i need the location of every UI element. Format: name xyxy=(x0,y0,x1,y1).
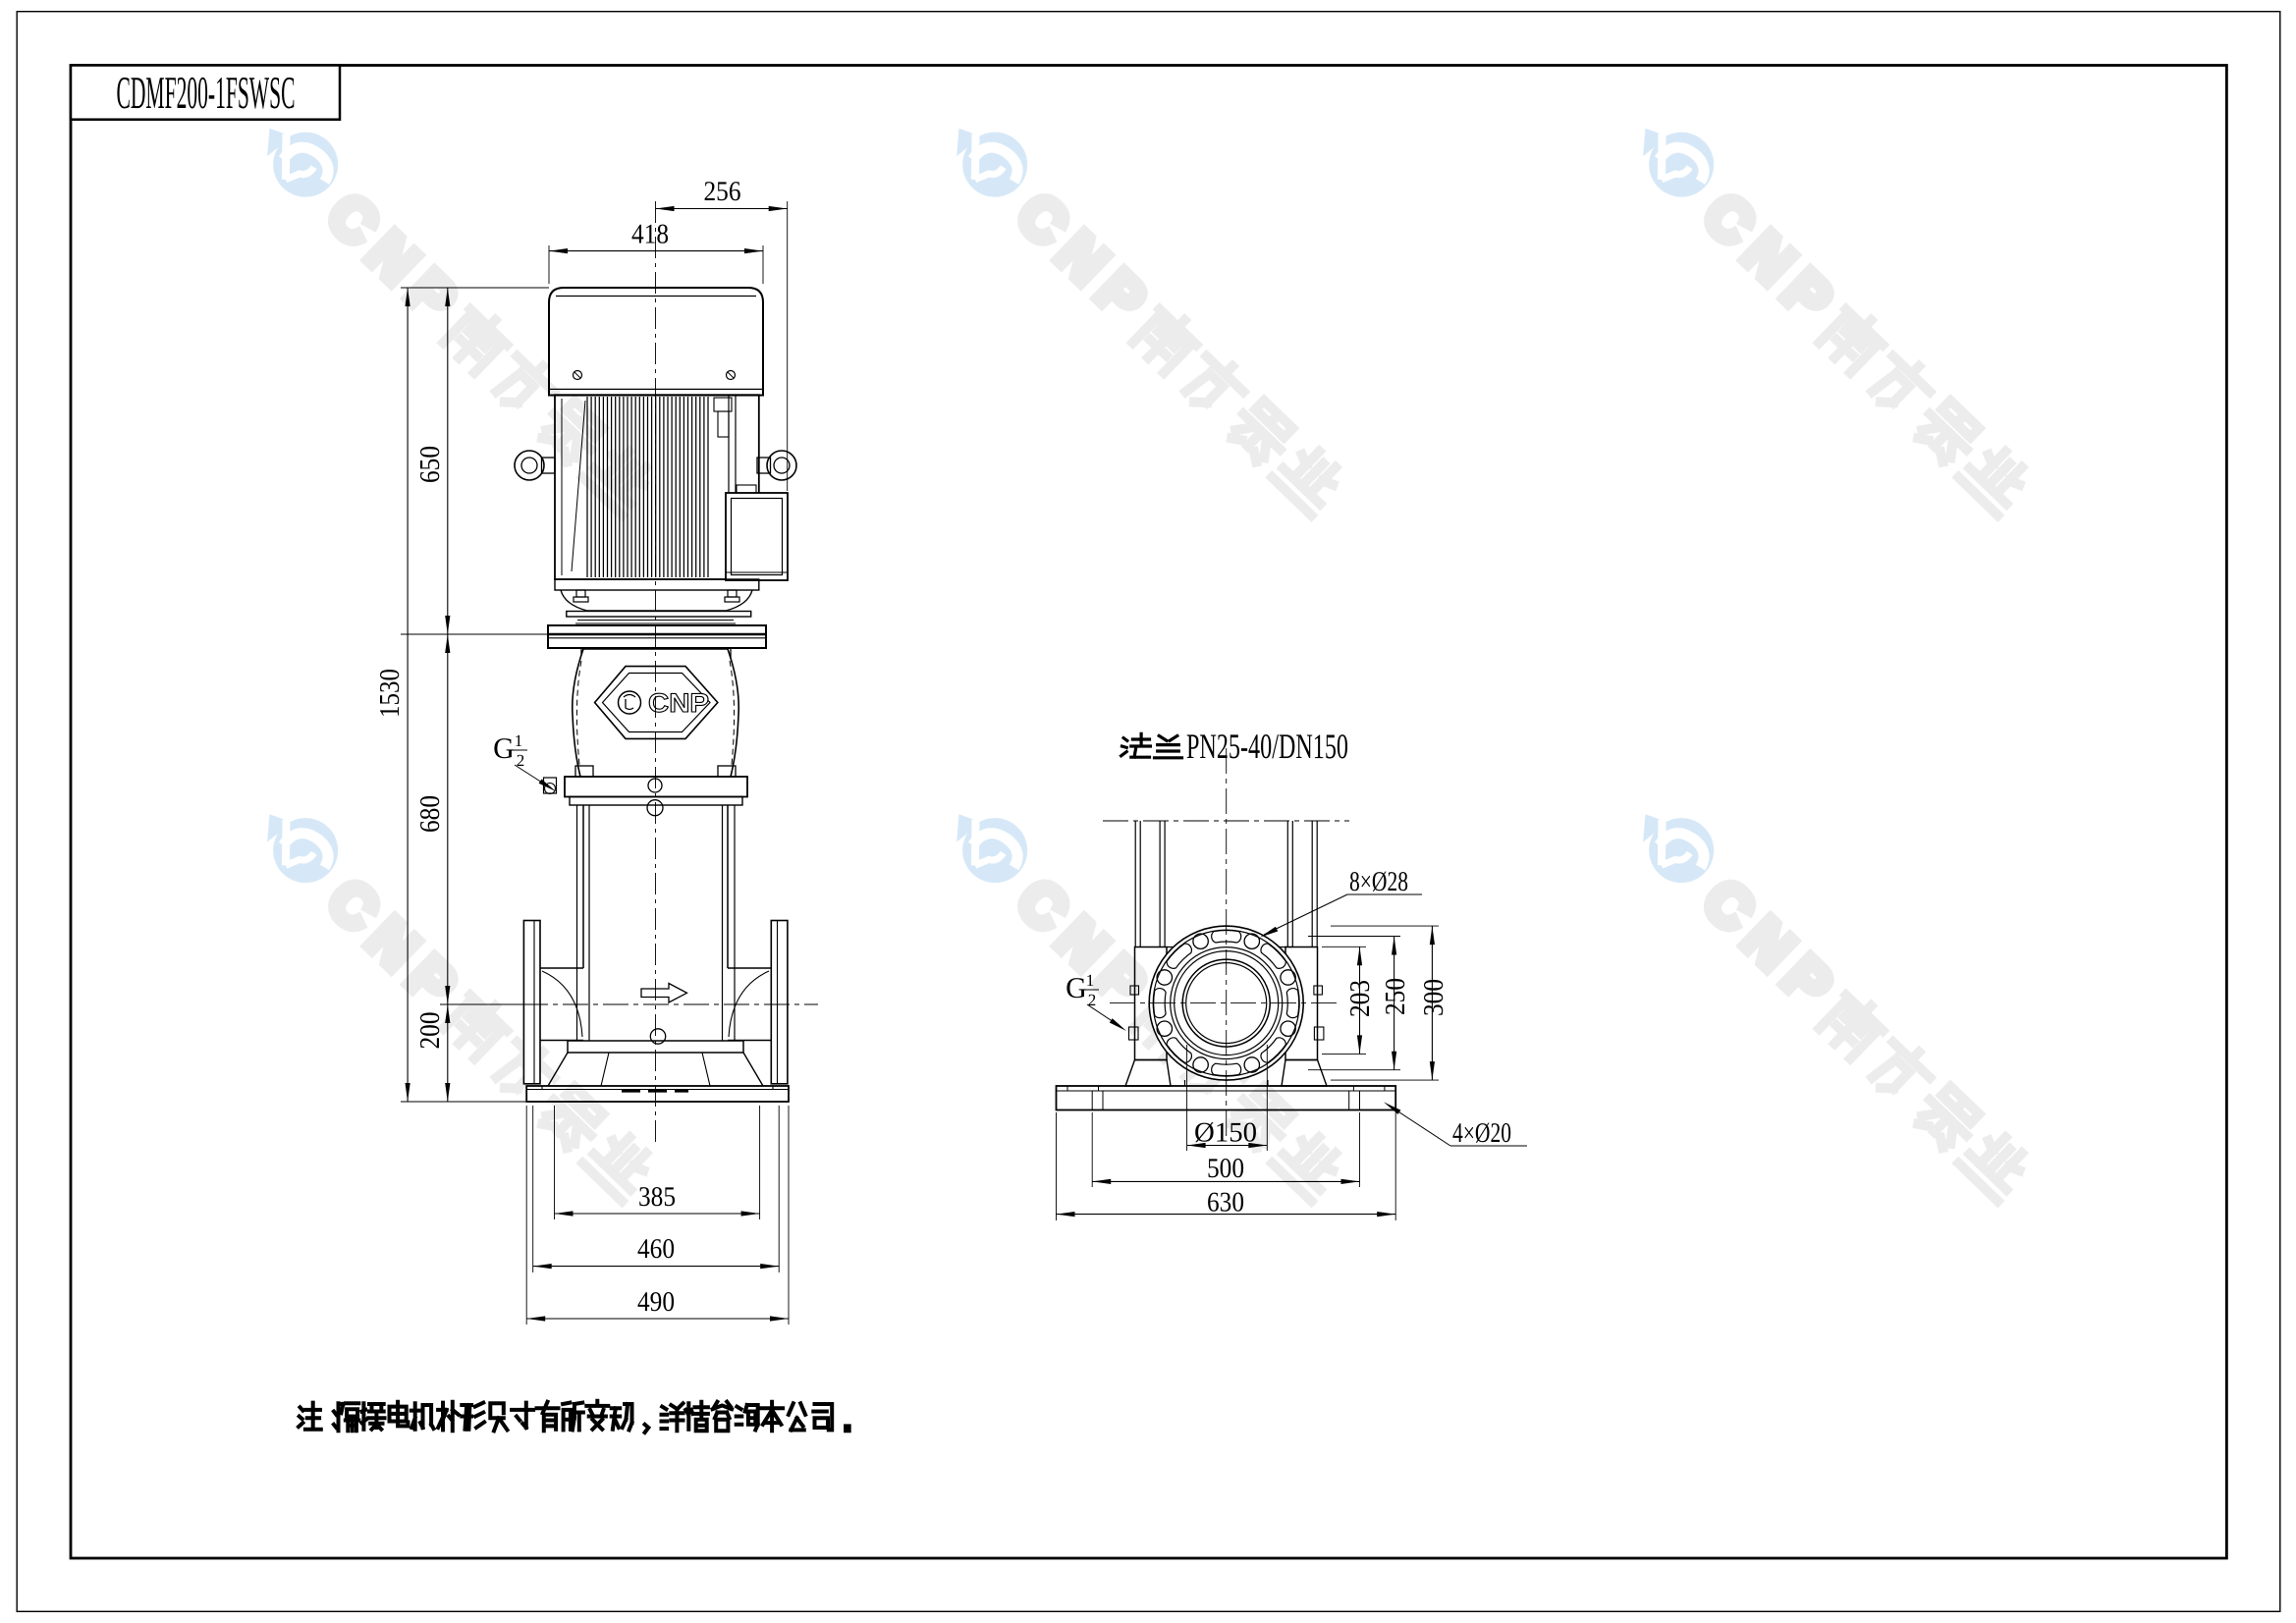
svg-text:500: 500 xyxy=(1207,1154,1244,1184)
svg-text:256: 256 xyxy=(703,177,740,207)
svg-text:300: 300 xyxy=(1419,979,1449,1016)
svg-text:PN25-40/DN150: PN25-40/DN150 xyxy=(1186,727,1348,766)
svg-text:250: 250 xyxy=(1381,978,1411,1015)
svg-text:4×Ø20: 4×Ø20 xyxy=(1452,1118,1511,1149)
svg-text:Ø150: Ø150 xyxy=(1194,1117,1257,1148)
svg-text:680: 680 xyxy=(415,795,446,833)
svg-text:1530: 1530 xyxy=(375,669,406,718)
svg-text:650: 650 xyxy=(415,446,446,483)
svg-text:2: 2 xyxy=(1088,991,1097,1009)
svg-text:630: 630 xyxy=(1207,1187,1244,1217)
svg-text:G: G xyxy=(493,732,515,765)
svg-text:G: G xyxy=(1066,972,1087,1004)
svg-text:CNP: CNP xyxy=(648,688,709,718)
svg-text:1: 1 xyxy=(1086,971,1095,990)
svg-text:8×Ø28: 8×Ø28 xyxy=(1349,867,1408,897)
svg-text:1: 1 xyxy=(515,731,523,750)
svg-text:CDMF200-1FSWSC: CDMF200-1FSWSC xyxy=(116,68,295,119)
svg-text:418: 418 xyxy=(631,219,669,249)
svg-text:490: 490 xyxy=(637,1287,675,1318)
svg-text:200: 200 xyxy=(415,1012,446,1050)
svg-text:385: 385 xyxy=(638,1182,676,1213)
svg-text:460: 460 xyxy=(637,1234,675,1265)
svg-text:203: 203 xyxy=(1345,980,1376,1017)
